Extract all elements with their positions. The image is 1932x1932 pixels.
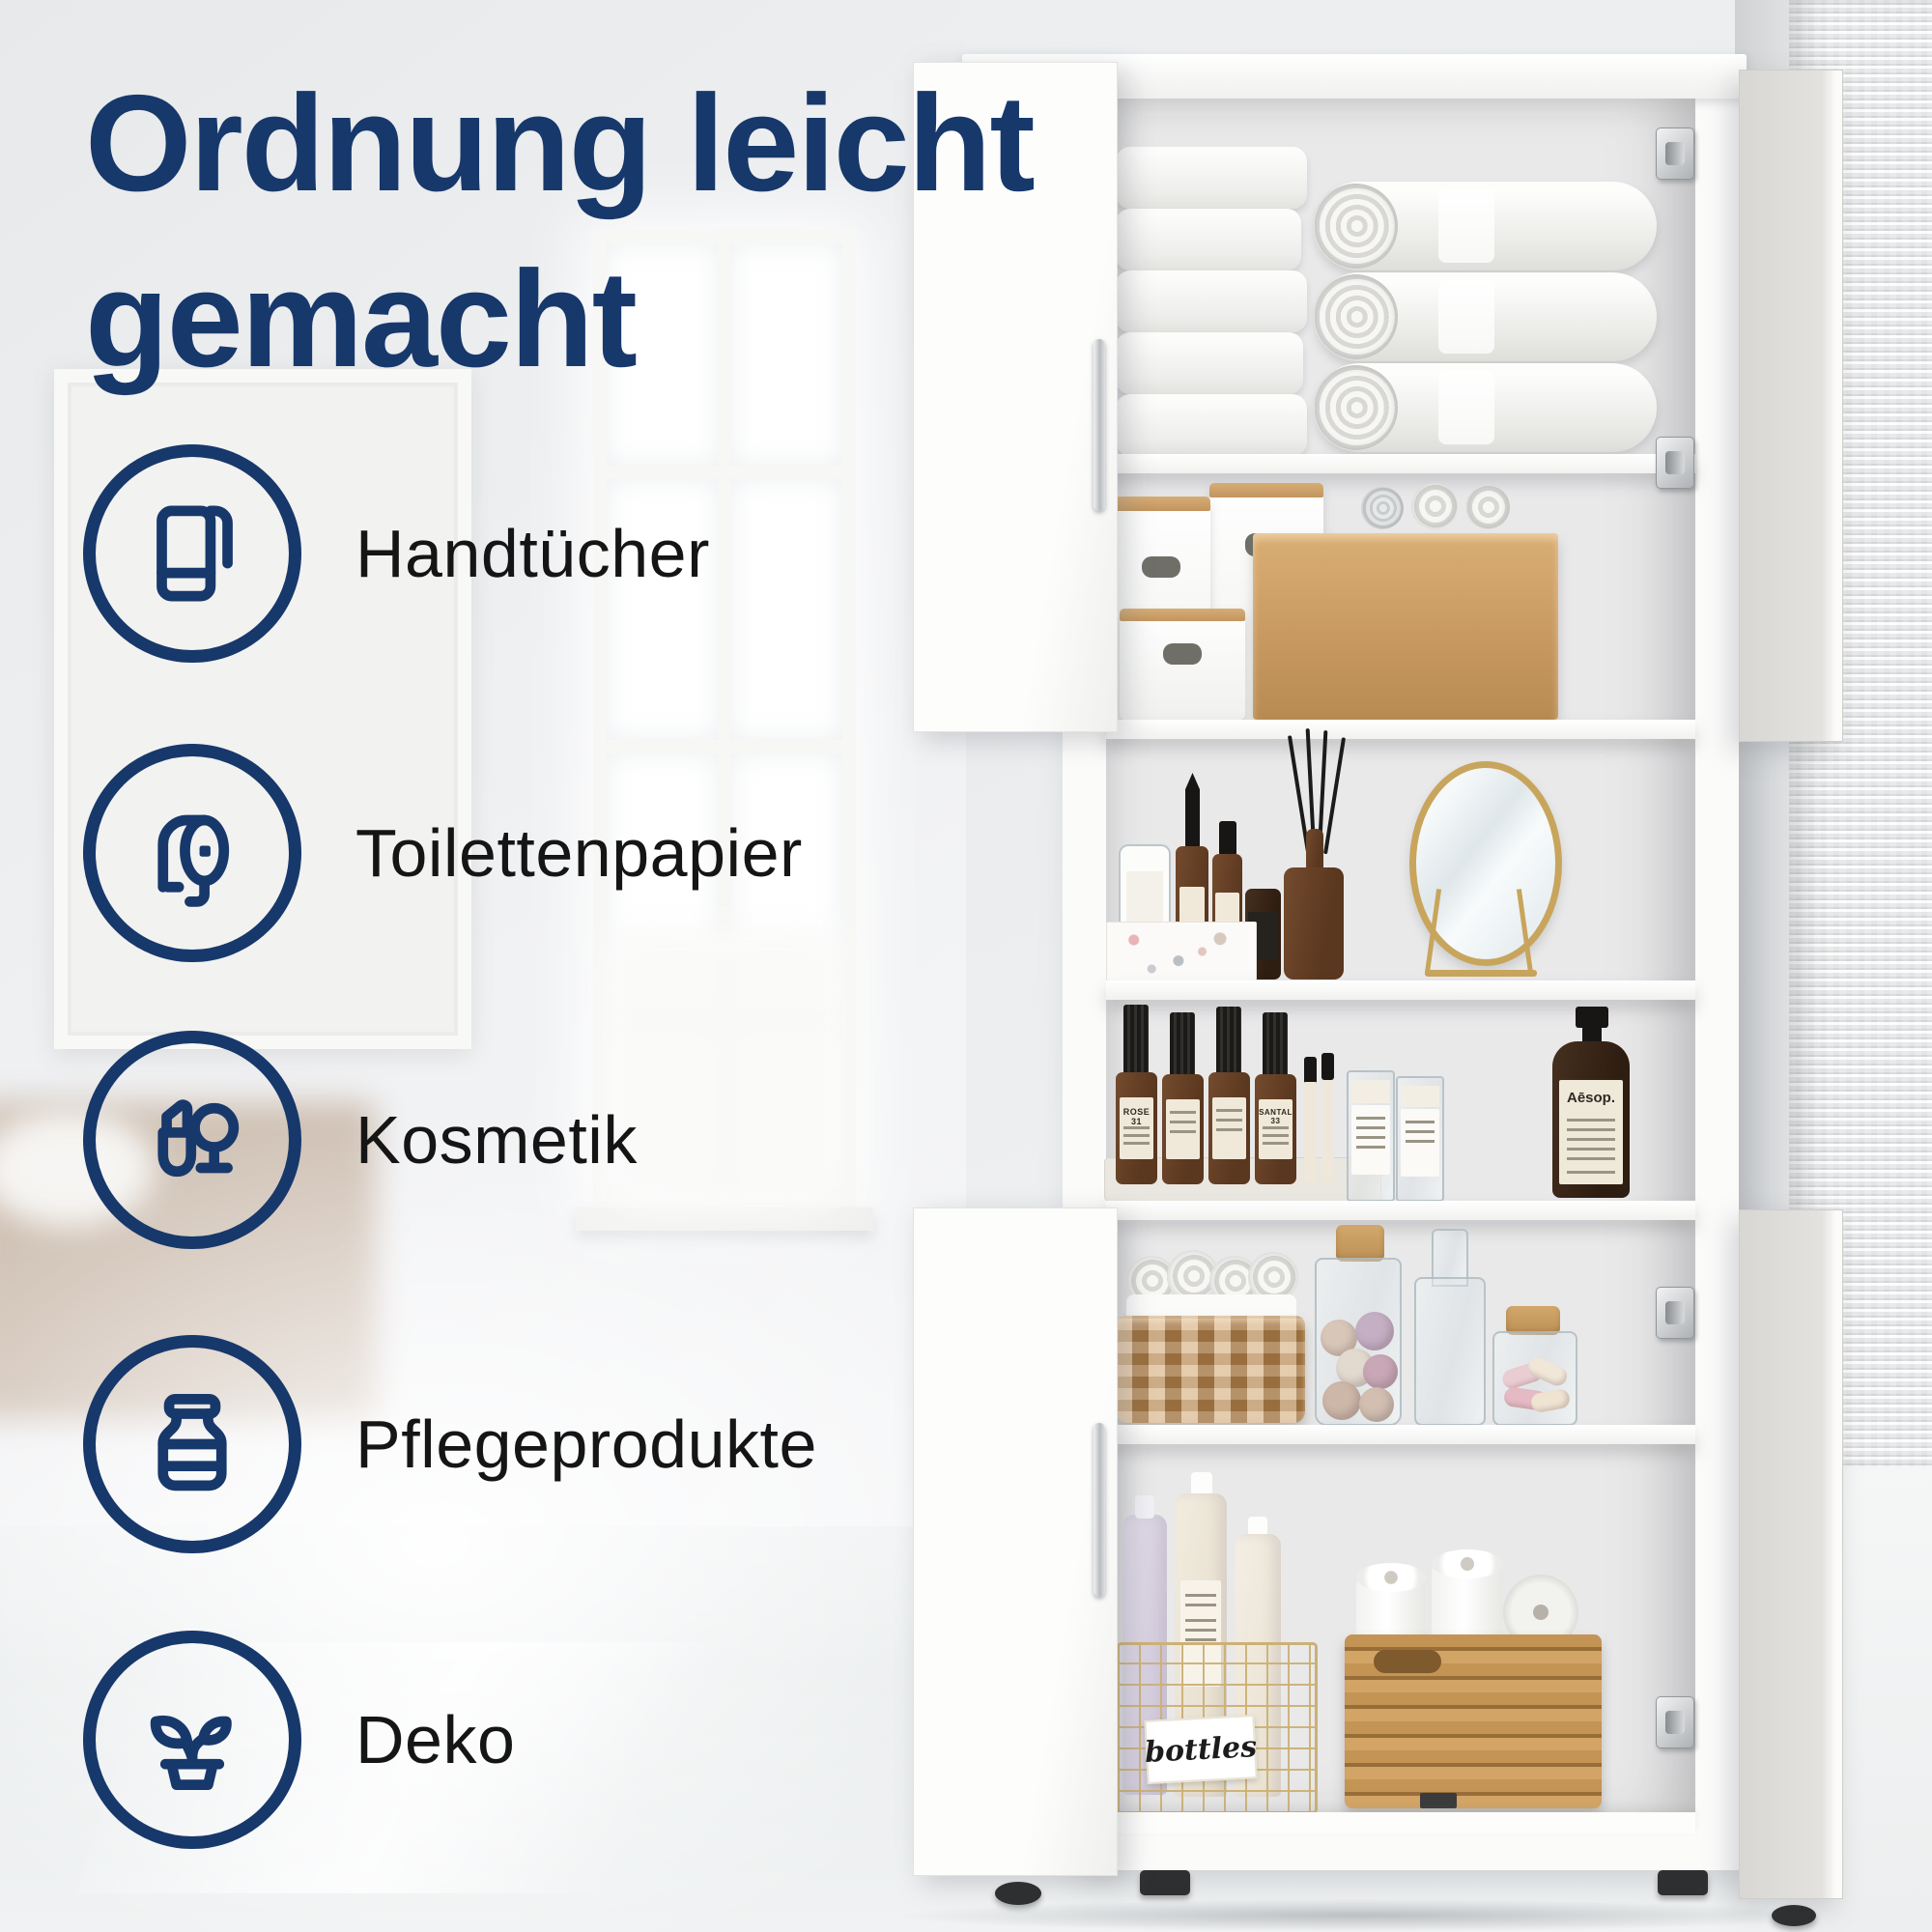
basket-handle-hole <box>1374 1650 1441 1673</box>
door-handle <box>1094 339 1105 511</box>
storage-bin <box>1120 609 1245 720</box>
folded-towel <box>1116 209 1301 270</box>
door-hinge <box>1656 437 1694 489</box>
glass-carafe <box>1315 1258 1402 1426</box>
feature-label: Pflegeprodukte <box>355 1406 817 1483</box>
title-line-2: gemacht <box>85 232 1034 408</box>
shelf-board <box>1106 454 1695 473</box>
feature-row-handtuecher: Handtücher <box>83 444 1049 663</box>
bottle-label-text: ROSE 31 <box>1120 1107 1153 1126</box>
door-hinge <box>1656 1696 1694 1748</box>
shelf-board <box>1106 1201 1695 1220</box>
care-jar-icon <box>83 1335 301 1553</box>
feature-row-kosmetik: Kosmetik <box>83 1031 1049 1249</box>
bin-wood-lid <box>1113 497 1210 511</box>
feature-label: Toilettenpapier <box>355 814 803 892</box>
mirror-base <box>1425 970 1537 977</box>
toilet-paper-icon <box>83 744 301 962</box>
tray-amber-bottle: ROSE 31 <box>1116 1072 1157 1184</box>
towel-icon <box>83 444 301 663</box>
bin-handle-hole <box>1163 643 1202 665</box>
candle-glass <box>1347 1070 1395 1202</box>
floor-shadow <box>898 1899 1826 1932</box>
feature-row-deko: Deko <box>83 1631 1049 1849</box>
aesop-label-text: Aēsop. <box>1559 1090 1623 1106</box>
rolled-towel-end <box>1465 485 1510 529</box>
feature-label: Kosmetik <box>355 1101 638 1179</box>
bottle-cap <box>1135 1495 1154 1519</box>
tray-amber-bottle <box>1162 1074 1204 1184</box>
rolled-towel <box>1315 272 1657 361</box>
feature-row-pflegeprodukte: Pflegeprodukte <box>83 1335 1049 1553</box>
candle-wax <box>1351 1080 1390 1103</box>
vial <box>1321 1080 1334 1182</box>
bin-handle-hole <box>1142 556 1180 578</box>
page-title: Ordnung leicht gemacht <box>85 56 1034 408</box>
capsule-jar <box>1492 1331 1577 1426</box>
diffuser-bottle <box>1284 867 1344 980</box>
bottle-cap <box>1263 1012 1288 1078</box>
floor-catch <box>1420 1793 1457 1808</box>
cabinet-foot <box>1658 1870 1708 1895</box>
folded-towel <box>1116 332 1303 394</box>
bottle-cap <box>1123 1005 1149 1076</box>
towels-in-basket <box>1126 1256 1296 1323</box>
basket-label-card: bottles <box>1144 1715 1257 1784</box>
towel-roll-end <box>1313 365 1398 450</box>
shelf-board <box>1106 1425 1695 1444</box>
towel-band <box>1438 280 1494 354</box>
aesop-pump-bottle: Aēsop. <box>1552 1041 1630 1198</box>
candle-wax <box>1401 1086 1439 1107</box>
carafe-cork <box>1336 1225 1384 1262</box>
feature-row-toilettenpapier: Toilettenpapier <box>83 744 1049 962</box>
cabinet-bottom-board <box>1106 1812 1695 1833</box>
bottle-cap <box>1216 1007 1241 1076</box>
folded-towel <box>1116 270 1307 332</box>
door-handle <box>1094 1423 1105 1597</box>
tray-amber-bottle <box>1208 1072 1250 1184</box>
glass-bottle <box>1414 1277 1486 1426</box>
candle-glass <box>1396 1076 1444 1202</box>
feature-label: Handtücher <box>355 515 710 592</box>
rolled-towel <box>1315 363 1657 452</box>
plant-icon <box>83 1631 301 1849</box>
vial-cap <box>1321 1053 1334 1080</box>
towel-band <box>1438 371 1494 444</box>
door-hinge <box>1656 128 1694 180</box>
product-infographic: ROSE 31 SANTAL 33 <box>0 0 1932 1932</box>
pump-cap <box>1576 1007 1608 1028</box>
wooden-box <box>1253 533 1558 720</box>
door-hinge <box>1656 1287 1694 1339</box>
vial <box>1304 1082 1317 1182</box>
shelf-board <box>1106 720 1695 739</box>
title-line-1: Ordnung leicht <box>85 56 1034 232</box>
towel-roll-end <box>1313 184 1398 269</box>
wicker-basket <box>1116 1316 1305 1423</box>
bottle-cap <box>1219 821 1236 856</box>
feature-label: Deko <box>355 1701 515 1778</box>
bottle-label-text: SANTAL 33 <box>1259 1108 1293 1125</box>
rolled-towel-end <box>1361 487 1404 529</box>
folded-towel <box>1116 394 1307 456</box>
basket-tag-text: bottles <box>1144 1729 1258 1769</box>
vial-cap <box>1304 1057 1317 1084</box>
terrazzo-box <box>1106 922 1257 981</box>
folded-towel <box>1116 147 1307 209</box>
bin-wood-lid <box>1120 609 1245 621</box>
tray-amber-bottle: SANTAL 33 <box>1255 1074 1296 1184</box>
seagrass-basket <box>1345 1634 1602 1808</box>
bottle-cap <box>1170 1012 1195 1080</box>
rolled-towel <box>1315 182 1657 270</box>
bin-wood-lid <box>1209 483 1323 497</box>
cosmetics-icon <box>83 1031 301 1249</box>
rolled-towel-end <box>1411 483 1458 529</box>
cabinet-foot <box>1140 1870 1190 1895</box>
upper-right-door <box>1739 70 1843 742</box>
towel-band <box>1438 189 1494 263</box>
towel-roll-end <box>1313 274 1398 359</box>
shelf-board <box>1106 980 1695 1000</box>
lower-right-door <box>1739 1209 1843 1899</box>
